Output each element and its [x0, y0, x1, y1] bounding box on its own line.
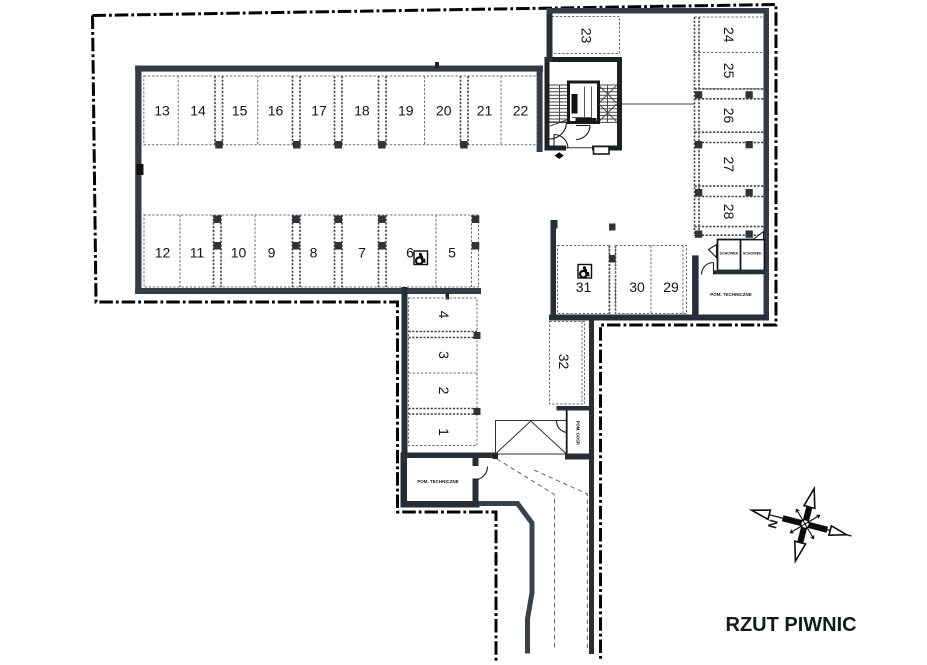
- svg-text:RZUT PIWNIC: RZUT PIWNIC: [726, 614, 857, 636]
- svg-text:2: 2: [436, 387, 452, 395]
- svg-text:12: 12: [155, 245, 171, 261]
- svg-text:32: 32: [556, 354, 572, 370]
- svg-text:30: 30: [629, 279, 645, 295]
- svg-text:20: 20: [436, 103, 452, 119]
- svg-text:26: 26: [721, 108, 737, 124]
- svg-text:15: 15: [232, 103, 248, 119]
- svg-text:9: 9: [268, 245, 276, 261]
- svg-text:7: 7: [358, 245, 366, 261]
- svg-text:13: 13: [154, 103, 170, 119]
- svg-text:1: 1: [436, 428, 452, 436]
- svg-text:23: 23: [579, 28, 595, 44]
- svg-text:18: 18: [354, 103, 370, 119]
- svg-text:10: 10: [231, 245, 247, 261]
- svg-text:29: 29: [663, 279, 679, 295]
- svg-text:6: 6: [406, 245, 414, 261]
- svg-text:25: 25: [721, 63, 737, 79]
- svg-text:14: 14: [190, 103, 206, 119]
- svg-text:31: 31: [576, 279, 592, 295]
- svg-text:24: 24: [721, 27, 737, 43]
- svg-text:3: 3: [436, 351, 452, 359]
- svg-text:27: 27: [721, 157, 737, 173]
- svg-text:22: 22: [513, 103, 529, 119]
- svg-text:POM. GOSP.: POM. GOSP.: [576, 421, 581, 446]
- svg-text:POM. TECHNICZNE: POM. TECHNICZNE: [417, 479, 458, 484]
- svg-text:11: 11: [190, 245, 205, 261]
- svg-text:19: 19: [398, 103, 414, 119]
- svg-text:16: 16: [268, 103, 284, 119]
- svg-text:28: 28: [721, 204, 737, 220]
- svg-text:4: 4: [436, 311, 452, 319]
- svg-text:SCHOWEK: SCHOWEK: [743, 252, 762, 256]
- svg-text:POM. TECHNICZNE: POM. TECHNICZNE: [710, 292, 751, 297]
- svg-text:21: 21: [477, 103, 493, 119]
- svg-text:SCHOWEK: SCHOWEK: [720, 252, 739, 256]
- svg-text:5: 5: [448, 245, 456, 261]
- svg-text:8: 8: [310, 245, 318, 261]
- svg-text:17: 17: [311, 103, 327, 119]
